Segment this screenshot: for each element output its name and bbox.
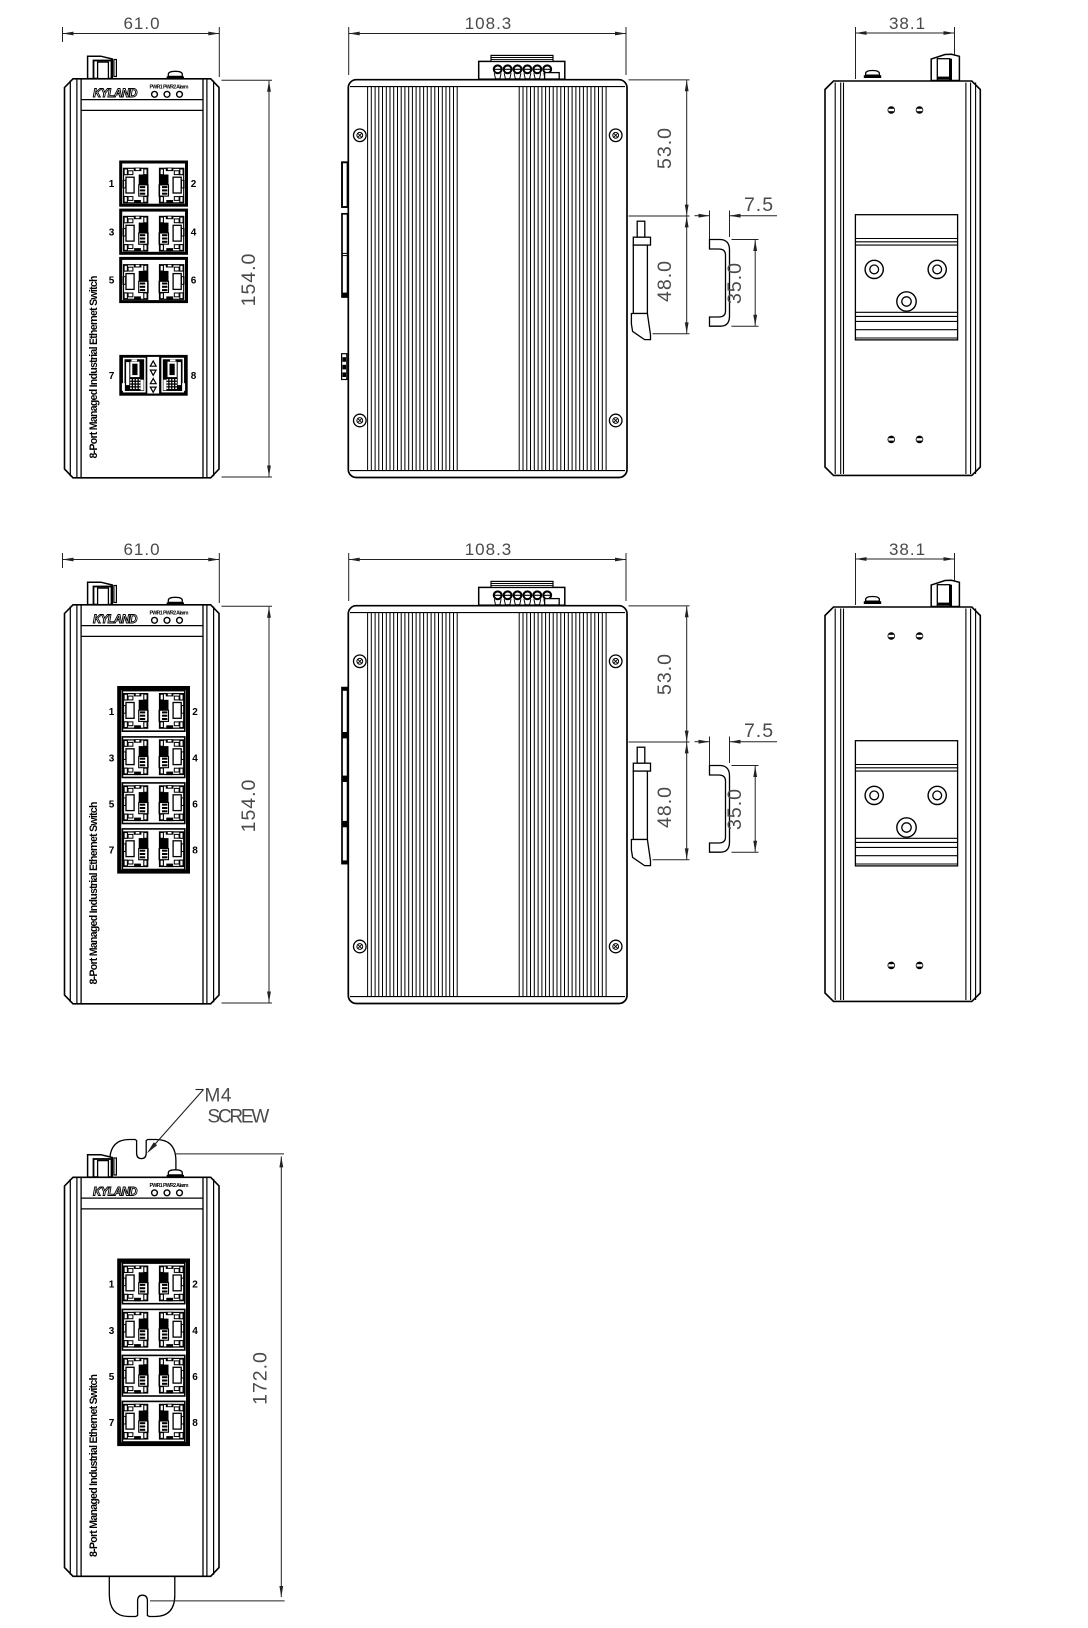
svg-text:61.0: 61.0 [123,14,160,33]
svg-text:4: 4 [191,227,197,238]
svg-text:3: 3 [109,227,115,238]
svg-text:8: 8 [191,371,197,382]
svg-text:6: 6 [191,276,197,287]
svg-text:5: 5 [109,276,115,287]
svg-text:1: 1 [109,179,115,190]
svg-text:8-Port Managed Industrial Ethe: 8-Port Managed Industrial Ethernet Switc… [88,276,100,459]
svg-text:PWR1 PWR2 Alarm: PWR1 PWR2 Alarm [150,84,189,90]
svg-text:172.0: 172.0 [250,1351,272,1405]
svg-text:7: 7 [109,371,115,382]
svg-text:KYLAND: KYLAND [93,88,138,100]
svg-text:48.0: 48.0 [654,260,676,302]
svg-text:M4: M4 [205,1086,232,1107]
svg-text:108.3: 108.3 [465,14,513,33]
svg-text:53.0: 53.0 [654,127,676,169]
svg-text:154.0: 154.0 [238,253,260,307]
svg-text:7.5: 7.5 [744,194,774,216]
svg-text:2: 2 [191,179,197,190]
svg-text:38.1: 38.1 [889,14,926,33]
svg-text:35.0: 35.0 [724,262,746,304]
svg-text:SCREW: SCREW [208,1107,270,1128]
